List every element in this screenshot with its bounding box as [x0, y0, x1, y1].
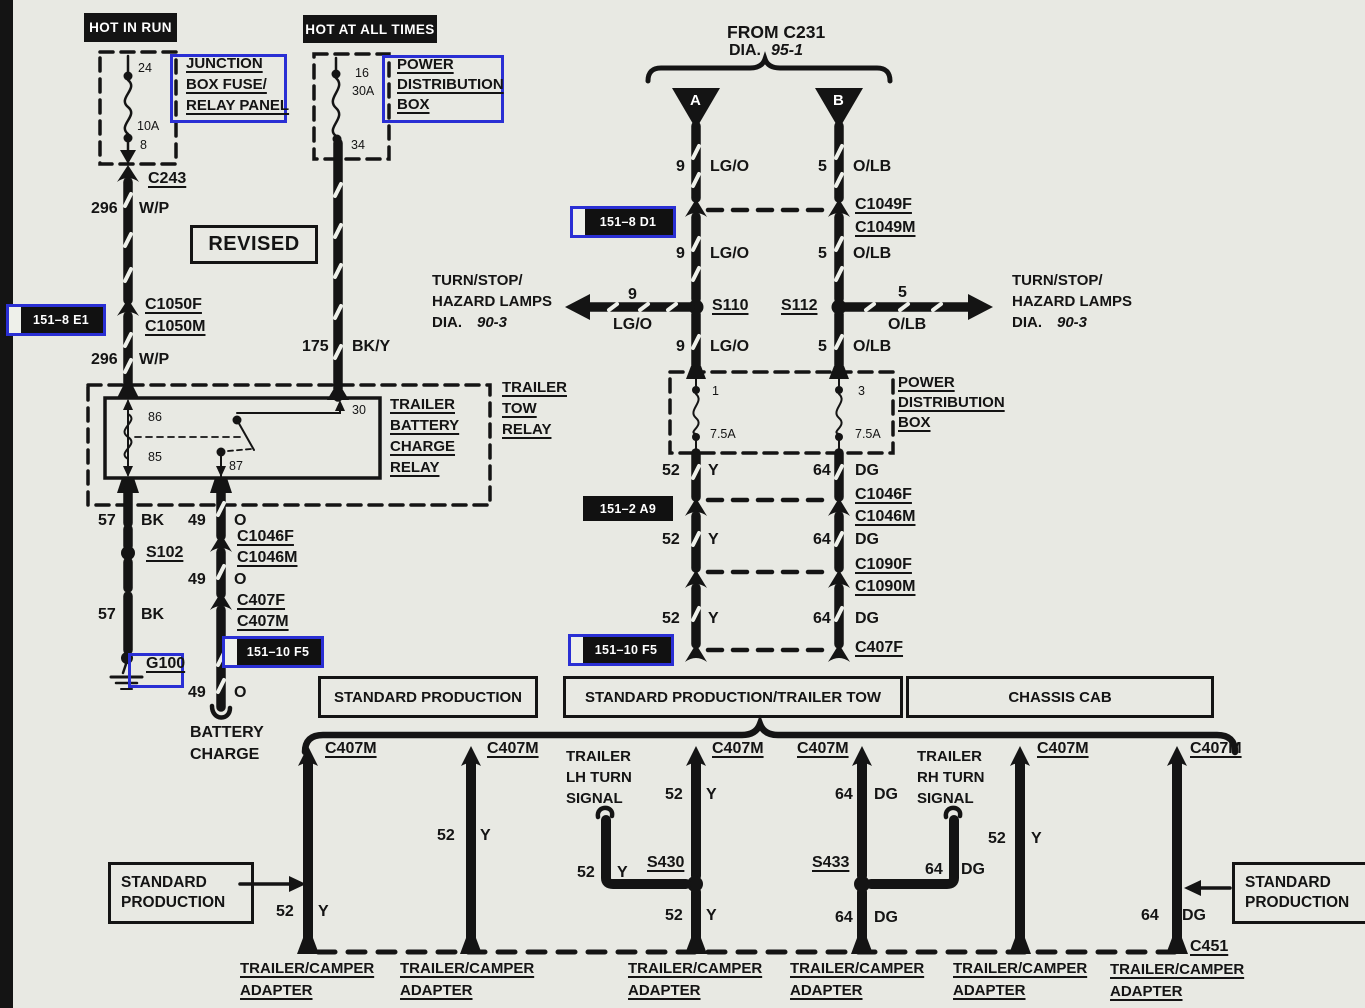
- connector-c1046f-right: C1046F: [855, 486, 912, 504]
- adapter-6-line2: ADAPTER: [1110, 983, 1183, 1000]
- color-lgo-label-3: LG/O: [710, 338, 749, 356]
- pdb-fuse-75a-left: 7.5A: [710, 427, 736, 441]
- color-lgo-arrow-label: LG/O: [613, 316, 652, 334]
- connector-c407f-left: C407F: [237, 592, 285, 610]
- trailer-lh-line2: LH TURN: [566, 769, 632, 786]
- junction-box-line3: RELAY PANEL: [186, 97, 289, 114]
- variant-standard-production-label: STANDARD PRODUCTION: [334, 689, 522, 706]
- circuit-52-w1: 52: [276, 903, 294, 921]
- hot-in-run-header-label: HOT IN RUN: [89, 20, 172, 35]
- hot-at-all-times-header-label: HOT AT ALL TIMES: [305, 22, 434, 37]
- turn-stop-left-line1: TURN/STOP/: [432, 272, 523, 289]
- connector-c1046f-left: C1046F: [237, 528, 294, 546]
- color-y-w3-lower: Y: [706, 907, 717, 925]
- connector-c1049m-label: C1049M: [855, 219, 915, 237]
- color-y-row2: Y: [708, 531, 719, 549]
- badge-tab: [573, 209, 585, 235]
- turn-stop-left-line2: HAZARD LAMPS: [432, 293, 552, 310]
- connector-c1046m-right: C1046M: [855, 508, 915, 526]
- color-dg-row1: DG: [855, 462, 879, 480]
- variant-chassis-cab-label: CHASSIS CAB: [1008, 689, 1111, 706]
- color-dg-row3: DG: [855, 610, 879, 628]
- badge-tab: [225, 639, 237, 665]
- std-prod-right-line1: STANDARD: [1245, 873, 1365, 893]
- color-y-w1: Y: [318, 903, 329, 921]
- connector-c407m-left: C407M: [237, 613, 289, 631]
- badge-tab: [9, 307, 21, 333]
- grid-ref-151-8-d1-label: 151–8 D1: [590, 215, 657, 229]
- right-column-wires-graphic: [685, 453, 850, 662]
- circuit-57-label-1: 57: [98, 512, 116, 530]
- hot-in-run-header: HOT IN RUN: [84, 13, 177, 42]
- from-c231-dia-label: DIA.: [729, 42, 761, 60]
- fuse-rating-10a: 10A: [137, 119, 159, 133]
- circuit-296-label-2: 296: [91, 351, 118, 369]
- std-prod-left-line2: PRODUCTION: [121, 893, 251, 913]
- grid-ref-badge-151-10-f5-left: 151–10 F5: [222, 636, 324, 668]
- connector-c407m-w5: C407M: [1037, 740, 1089, 758]
- junction-box-line1: JUNCTION: [186, 55, 263, 72]
- circuit-64-row1: 64: [813, 462, 831, 480]
- color-y-row3: Y: [708, 610, 719, 628]
- splice-s110-label: S110: [712, 297, 748, 315]
- connector-c407m-w4: C407M: [797, 740, 849, 758]
- relay-inner-line4: RELAY: [390, 459, 439, 476]
- grid-ref-151-2-a9-label: 151–2 A9: [600, 502, 656, 516]
- connector-c407m-w3: C407M: [712, 740, 764, 758]
- adapter-6-line1: TRAILER/CAMPER: [1110, 961, 1244, 978]
- connector-c407f-right: C407F: [855, 639, 903, 657]
- wire-color-bky-label: BK/Y: [352, 338, 390, 356]
- connector-c451-label: C451: [1190, 938, 1228, 956]
- badge-tab: [571, 637, 583, 663]
- circuit-5-label-2: 5: [818, 245, 827, 263]
- pdb-right-line2: DISTRIBUTION: [898, 394, 1005, 411]
- color-o-label-3: O: [234, 684, 246, 702]
- battery-charge-branch-graphic: [210, 490, 232, 718]
- circuit-296-label-1: 296: [91, 200, 118, 218]
- turn-stop-left-dia-value: 90-3: [477, 314, 507, 331]
- circuit-64-row3: 64: [813, 610, 831, 628]
- pdb-pin-3: 3: [858, 384, 865, 398]
- hot-at-all-times-header: HOT AT ALL TIMES: [303, 15, 437, 43]
- revised-stamp-box: REVISED: [190, 225, 318, 264]
- adapter-dash-line-graphic: [297, 938, 1188, 954]
- terminal-b-label: B: [833, 92, 844, 109]
- circuit-64-rh: 64: [925, 861, 943, 879]
- circuit-5-arrow-label: 5: [898, 284, 907, 302]
- color-dg-w4-lower: DG: [874, 909, 898, 927]
- relay-pin-85: 85: [148, 450, 162, 464]
- connector-c407m-w2: C407M: [487, 740, 539, 758]
- adapter-2-line1: TRAILER/CAMPER: [400, 960, 534, 977]
- color-olb-label-3: O/LB: [853, 338, 891, 356]
- pdb-top-line2: DISTRIBUTION: [397, 76, 504, 93]
- circuit-52-row1: 52: [662, 462, 680, 480]
- adapter-1-line1: TRAILER/CAMPER: [240, 960, 374, 977]
- c231-terminals-graphic: [648, 59, 890, 379]
- std-prod-right-line2: PRODUCTION: [1245, 893, 1365, 913]
- circuit-52-w3-upper: 52: [665, 786, 683, 804]
- turn-stop-right-dia: DIA.: [1012, 314, 1042, 331]
- color-olb-label-1: O/LB: [853, 158, 891, 176]
- relay-outer-line1: TRAILER: [502, 379, 567, 396]
- circuit-52-w2: 52: [437, 827, 455, 845]
- adapter-5-line1: TRAILER/CAMPER: [953, 960, 1087, 977]
- splice-s112-label: S112: [781, 297, 817, 315]
- pdb-top-line3: BOX: [397, 96, 430, 113]
- circuit-52-row3: 52: [662, 610, 680, 628]
- color-olb-label-2: O/LB: [853, 245, 891, 263]
- adapter-4-line1: TRAILER/CAMPER: [790, 960, 924, 977]
- grid-ref-badge-151-8-e1: 151–8 E1: [6, 304, 106, 336]
- circuit-64-w4-lower: 64: [835, 909, 853, 927]
- connector-c1050f-label: C1050F: [145, 296, 202, 314]
- turn-stop-left-dia: DIA.: [432, 314, 462, 331]
- trailer-lh-line1: TRAILER: [566, 748, 631, 765]
- relay-outer-line3: RELAY: [502, 421, 551, 438]
- relay-inner-line1: TRAILER: [390, 396, 455, 413]
- junction-box-line2: BOX FUSE/: [186, 76, 267, 93]
- fuse-pin-16: 16: [355, 66, 369, 80]
- fuse-pin-34: 34: [351, 138, 365, 152]
- grid-ref-badge-151-8-d1: 151–8 D1: [570, 206, 676, 238]
- trailer-rh-line3: SIGNAL: [917, 790, 974, 807]
- circuit-9-label-1: 9: [676, 158, 685, 176]
- connector-c407m-w6: C407M: [1190, 740, 1242, 758]
- circuit-64-w4-upper: 64: [835, 786, 853, 804]
- relay-outer-line2: TOW: [502, 400, 537, 417]
- circuit-52-row2: 52: [662, 531, 680, 549]
- splice-s430-label: S430: [647, 854, 684, 872]
- color-dg-w6: DG: [1182, 907, 1206, 925]
- wire-color-wp-label-2: W/P: [139, 351, 169, 369]
- turn-stop-right-dia-value: 90-3: [1057, 314, 1087, 331]
- connector-c407m-w1: C407M: [325, 740, 377, 758]
- battery-charge-line1: BATTERY: [190, 724, 264, 742]
- color-y-w2: Y: [480, 827, 491, 845]
- ground-g100-label: G100: [146, 655, 185, 673]
- standard-production-callout-right: STANDARD PRODUCTION: [1232, 862, 1365, 924]
- variant-standard-production-box: STANDARD PRODUCTION: [318, 676, 538, 718]
- color-y-w3-upper: Y: [706, 786, 717, 804]
- adapter-3-line2: ADAPTER: [628, 982, 701, 999]
- circuit-9-arrow-label: 9: [628, 286, 637, 304]
- splice-s433-label: S433: [812, 854, 849, 872]
- color-lgo-label-1: LG/O: [710, 158, 749, 176]
- adapter-4-line2: ADAPTER: [790, 982, 863, 999]
- color-dg-row2: DG: [855, 531, 879, 549]
- from-c231-dia-value: 95-1: [771, 42, 803, 60]
- circuit-49-label-3: 49: [188, 684, 206, 702]
- color-dg-rh: DG: [961, 861, 985, 879]
- color-y-lh: Y: [617, 864, 628, 882]
- terminal-a-label: A: [690, 92, 701, 109]
- standard-production-callout-left: STANDARD PRODUCTION: [108, 862, 254, 924]
- page-edge-strip: [0, 0, 13, 1008]
- hot-in-run-fuse-graphic: [100, 52, 176, 398]
- connector-c1090m-label: C1090M: [855, 578, 915, 596]
- color-olb-arrow-label: O/LB: [888, 316, 926, 334]
- grid-ref-badge-151-2-a9: 151–2 A9: [583, 496, 673, 521]
- revised-stamp-label: REVISED: [208, 233, 299, 256]
- relay-pin-86: 86: [148, 410, 162, 424]
- variant-standard-production-trailer-tow-label: STANDARD PRODUCTION/TRAILER TOW: [585, 689, 881, 706]
- adapter-3-line1: TRAILER/CAMPER: [628, 960, 762, 977]
- connector-c243-label: C243: [148, 170, 186, 188]
- circuit-52-w3-lower: 52: [665, 907, 683, 925]
- circuit-64-row2: 64: [813, 531, 831, 549]
- trailer-lh-line3: SIGNAL: [566, 790, 623, 807]
- wire-color-wp-label-1: W/P: [139, 200, 169, 218]
- grid-ref-badge-151-10-f5-right: 151–10 F5: [568, 634, 674, 666]
- color-bk-label-1: BK: [141, 512, 164, 530]
- color-lgo-label-2: LG/O: [710, 245, 749, 263]
- circuit-5-label-1: 5: [818, 158, 827, 176]
- variant-chassis-cab-box: CHASSIS CAB: [906, 676, 1214, 718]
- relay-inner-line3: CHARGE: [390, 438, 455, 455]
- circuit-49-label-2: 49: [188, 571, 206, 589]
- circuit-175-label: 175: [302, 338, 329, 356]
- grid-ref-151-10-f5-left-label: 151–10 F5: [237, 645, 309, 659]
- circuit-5-label-3: 5: [818, 338, 827, 356]
- pdb-right-line1: POWER: [898, 374, 955, 391]
- wiring-diagram-page: HOT IN RUN HOT AT ALL TIMES 24 10A 8 JUN…: [0, 0, 1365, 1008]
- circuit-52-lh: 52: [577, 864, 595, 882]
- pdb-top-line1: POWER: [397, 56, 454, 73]
- std-prod-left-line1: STANDARD: [121, 873, 251, 893]
- splice-s102-label: S102: [146, 544, 183, 562]
- fuse-pin-8: 8: [140, 138, 147, 152]
- color-dg-w4-upper: DG: [874, 786, 898, 804]
- variant-standard-production-trailer-tow-box: STANDARD PRODUCTION/TRAILER TOW: [563, 676, 903, 718]
- from-c231-title: FROM C231: [727, 22, 825, 42]
- fuse-pin-24: 24: [138, 61, 152, 75]
- connector-c1090f-label: C1090F: [855, 556, 912, 574]
- fuse-rating-30a: 30A: [352, 84, 374, 98]
- color-y-w5: Y: [1031, 830, 1042, 848]
- connector-c1049f-label: C1049F: [855, 196, 912, 214]
- circuit-49-label-1: 49: [188, 512, 206, 530]
- relay-pin-87: 87: [229, 459, 243, 473]
- color-o-label-2: O: [234, 571, 246, 589]
- bottom-wires-graphic: [240, 746, 1230, 947]
- trailer-rh-line2: RH TURN: [917, 769, 985, 786]
- circuit-57-label-2: 57: [98, 606, 116, 624]
- color-bk-label-2: BK: [141, 606, 164, 624]
- pdb-pin-1: 1: [712, 384, 719, 398]
- connector-c1050m-label: C1050M: [145, 318, 205, 336]
- adapter-2-line2: ADAPTER: [400, 982, 473, 999]
- adapter-5-line2: ADAPTER: [953, 982, 1026, 999]
- pdb-fuse-75a-right: 7.5A: [855, 427, 881, 441]
- adapter-1-line2: ADAPTER: [240, 982, 313, 999]
- connector-c1046m-left: C1046M: [237, 549, 297, 567]
- circuit-9-label-3: 9: [676, 338, 685, 356]
- circuit-9-label-2: 9: [676, 245, 685, 263]
- grid-ref-151-8-e1-label: 151–8 E1: [23, 313, 89, 327]
- color-y-row1: Y: [708, 462, 719, 480]
- circuit-52-w5: 52: [988, 830, 1006, 848]
- relay-pin-30: 30: [352, 403, 366, 417]
- turn-stop-right-line1: TURN/STOP/: [1012, 272, 1103, 289]
- trailer-rh-line1: TRAILER: [917, 748, 982, 765]
- turn-stop-right-line2: HAZARD LAMPS: [1012, 293, 1132, 310]
- circuit-64-w6: 64: [1141, 907, 1159, 925]
- relay-inner-line2: BATTERY: [390, 417, 459, 434]
- bottom-brace-graphic: [305, 724, 1235, 752]
- battery-charge-line2: CHARGE: [190, 746, 259, 764]
- grid-ref-151-10-f5-right-label: 151–10 F5: [585, 643, 657, 657]
- pdb-right-line3: BOX: [898, 414, 931, 431]
